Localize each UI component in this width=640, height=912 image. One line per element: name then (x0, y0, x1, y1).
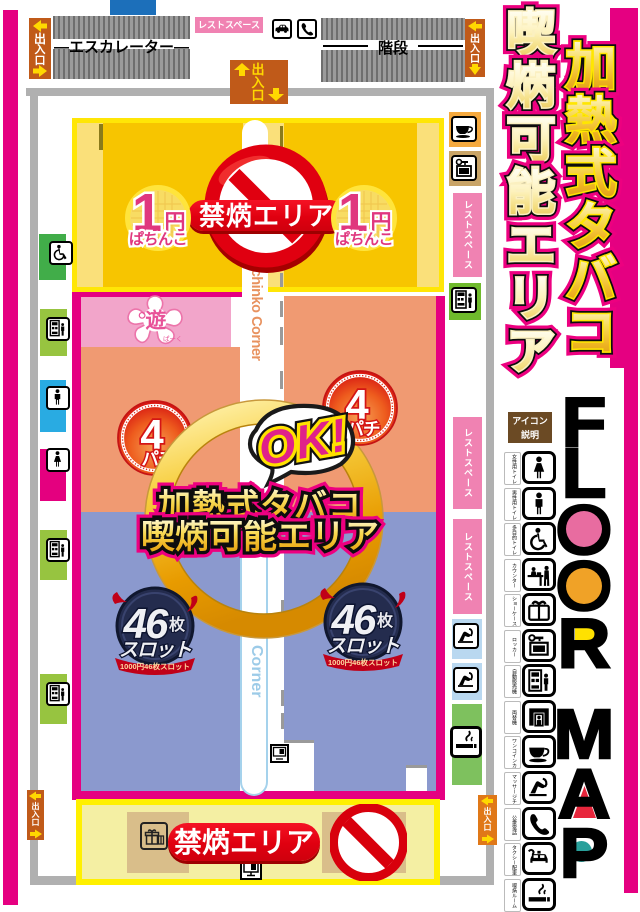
svg-text:ぱちんこ: ぱちんこ (129, 230, 187, 248)
svg-text:1000円46枚スロット: 1000円46枚スロット (120, 661, 190, 671)
svg-text:口: 口 (251, 88, 264, 103)
svg-text:ぱちんこ: ぱちんこ (335, 230, 393, 248)
svg-text:口: 口 (484, 823, 492, 832)
svg-text:口: 口 (32, 818, 40, 827)
svg-text:スロット: スロット (119, 640, 192, 661)
svg-text:枚: 枚 (377, 611, 394, 630)
svg-text:ぱーく: ぱーく (163, 335, 182, 343)
svg-text:口: 口 (470, 54, 480, 65)
svg-text:遊: 遊 (145, 308, 166, 332)
svg-text:1000円46枚スロット: 1000円46枚スロット (328, 657, 398, 667)
svg-text:スロット: スロット (327, 636, 400, 657)
svg-text:枚: 枚 (169, 615, 186, 634)
svg-text:口: 口 (35, 54, 46, 67)
